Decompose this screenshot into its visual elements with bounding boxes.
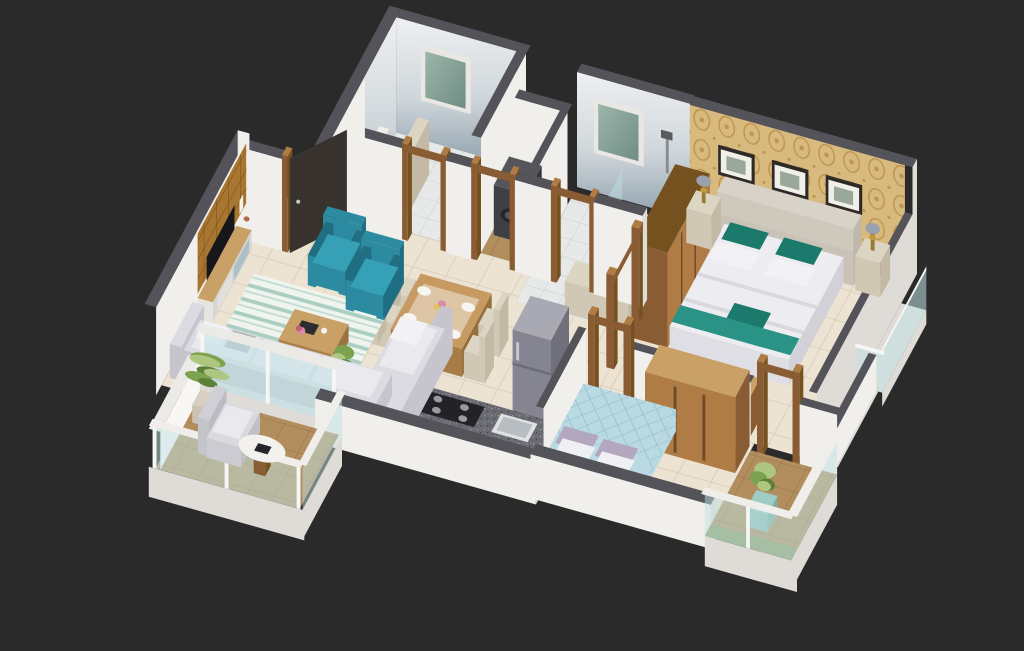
nightstand-front	[686, 209, 711, 250]
apartment-3d-floor-plan	[0, 0, 1024, 651]
fridge-handle	[516, 342, 519, 361]
railing-post	[746, 505, 750, 549]
master-door-post-side	[639, 222, 643, 323]
door-post-front	[793, 371, 800, 465]
wall	[515, 180, 552, 282]
shower-pipe	[666, 139, 669, 174]
wall-end	[643, 208, 648, 308]
dining-chair-front	[464, 352, 481, 383]
wardrobe-door-seam	[702, 394, 705, 461]
door-post-front	[757, 361, 764, 455]
dining-chair-back-front	[479, 336, 485, 384]
door-frame-post-front	[510, 174, 516, 272]
wallpaper-wall-end	[913, 159, 918, 282]
door-frame-post-front	[402, 143, 408, 241]
nightstand-front	[855, 256, 880, 297]
lamp-stem	[871, 232, 875, 251]
wall	[446, 161, 471, 260]
glass-post	[266, 345, 270, 404]
door-frame-post-front	[441, 154, 447, 252]
door-frame-post-front	[551, 185, 557, 283]
door-frame-post-front	[471, 163, 477, 261]
dining-chair-back-front	[494, 309, 500, 357]
lamp-stem	[702, 185, 706, 204]
apartment-isometric-svg	[0, 0, 1024, 651]
railing-post	[153, 424, 157, 469]
entry-door-post-front	[282, 155, 288, 253]
master-door-post-side	[614, 269, 618, 370]
railing-post	[297, 464, 301, 509]
